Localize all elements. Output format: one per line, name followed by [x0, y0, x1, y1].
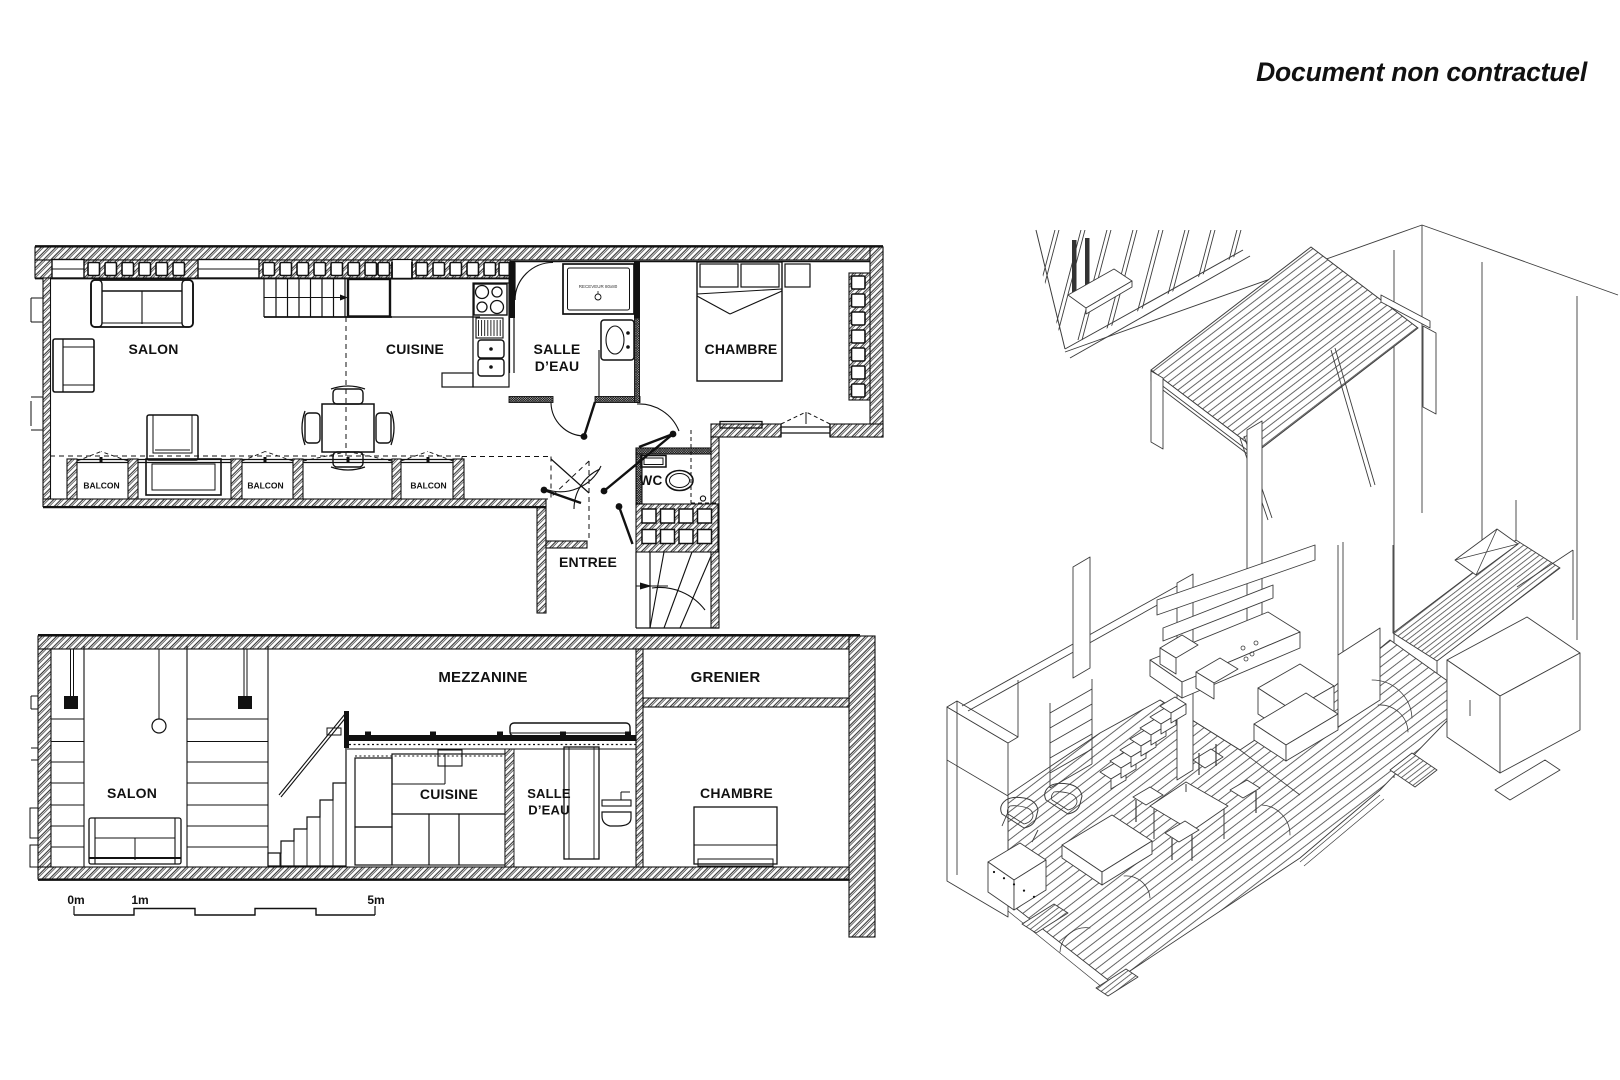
svg-text:CHAMBRE: CHAMBRE [705, 341, 778, 357]
svg-text:1m: 1m [131, 893, 148, 907]
svg-text:Document non contractuel: Document non contractuel [1256, 57, 1588, 87]
svg-text:SALON: SALON [107, 785, 157, 801]
svg-text:CHAMBRE: CHAMBRE [700, 785, 773, 801]
svg-text:SALON: SALON [129, 341, 179, 357]
svg-text:BALCON: BALCON [410, 481, 446, 491]
svg-text:CUISINE: CUISINE [386, 341, 444, 357]
svg-text:GRENIER: GRENIER [691, 669, 761, 686]
svg-text:0m: 0m [67, 893, 84, 907]
svg-text:WC: WC [640, 473, 663, 488]
svg-text:D’EAU: D’EAU [535, 358, 580, 374]
svg-text:BALCON: BALCON [83, 481, 119, 491]
svg-text:CUISINE: CUISINE [420, 786, 478, 802]
svg-text:BALCON: BALCON [247, 481, 283, 491]
svg-text:SALLE: SALLE [534, 341, 581, 357]
svg-text:RECEVEUR 80x80: RECEVEUR 80x80 [579, 284, 618, 289]
svg-text:ENTREE: ENTREE [559, 554, 617, 570]
svg-text:MEZZANINE: MEZZANINE [438, 669, 527, 686]
svg-text:5m: 5m [367, 893, 384, 907]
